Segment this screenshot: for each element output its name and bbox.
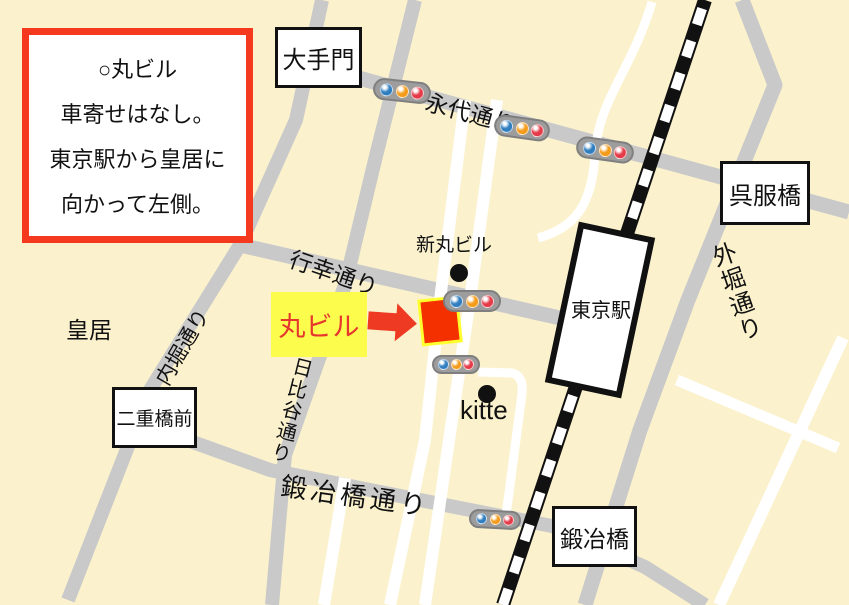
traffic-light: [443, 290, 501, 312]
traffic-light-orange-icon: [515, 121, 530, 136]
place-box-nijubashimae: 二重橋前: [112, 387, 197, 448]
traffic-light: [469, 509, 522, 531]
info-line-4: 向かって左側。: [61, 187, 214, 219]
white-road-southeast-2: [719, 338, 843, 605]
traffic-light-red-icon: [503, 514, 515, 526]
station-label-tokyo: 東京駅: [566, 300, 636, 322]
traffic-light-orange-icon: [466, 295, 479, 308]
traffic-light: [432, 355, 480, 374]
place-box-otemon: 大手門: [275, 27, 362, 88]
marubiru-label-box: 丸ビル: [271, 292, 367, 357]
info-box: ○丸ビル 車寄せはなし。 東京駅から皇居に 向かって左側。: [22, 28, 253, 243]
traffic-light-red-icon: [530, 123, 545, 138]
traffic-light-orange-icon: [451, 359, 462, 370]
traffic-light-orange-icon: [598, 143, 613, 158]
route-map: ○丸ビル 車寄せはなし。 東京駅から皇居に 向かって左側。 大手門 呉服橋 二重…: [0, 0, 849, 605]
traffic-light-blue-icon: [438, 359, 449, 370]
traffic-light-blue-icon: [450, 295, 463, 308]
info-line-1: ○丸ビル: [98, 52, 177, 84]
traffic-light-red-icon: [411, 86, 425, 100]
traffic-light-red-icon: [613, 145, 628, 160]
traffic-light-blue-icon: [500, 119, 515, 134]
traffic-light-orange-icon: [489, 514, 501, 526]
arrow-icon: [367, 301, 419, 342]
landmark-label-kitte: kitte: [460, 396, 508, 425]
place-box-kajibashi: 鍛冶橋: [552, 506, 637, 567]
white-road-marunouchi-west: [390, 100, 465, 605]
place-box-gofukubashi: 呉服橋: [720, 161, 810, 225]
info-line-3: 東京駅から皇居に: [49, 142, 225, 174]
landmark-label-shinmaru: 新丸ビル: [416, 236, 492, 257]
traffic-light-red-icon: [481, 295, 494, 308]
traffic-light-red-icon: [463, 359, 474, 370]
traffic-light-orange-icon: [395, 84, 409, 98]
traffic-light-blue-icon: [582, 140, 597, 155]
info-line-2: 車寄せはなし。: [60, 97, 214, 129]
shinmaru-dot-icon: [450, 264, 468, 282]
landmark-label-kokyo: 皇居: [66, 318, 112, 343]
traffic-light-blue-icon: [379, 82, 393, 96]
traffic-light-blue-icon: [475, 513, 487, 525]
